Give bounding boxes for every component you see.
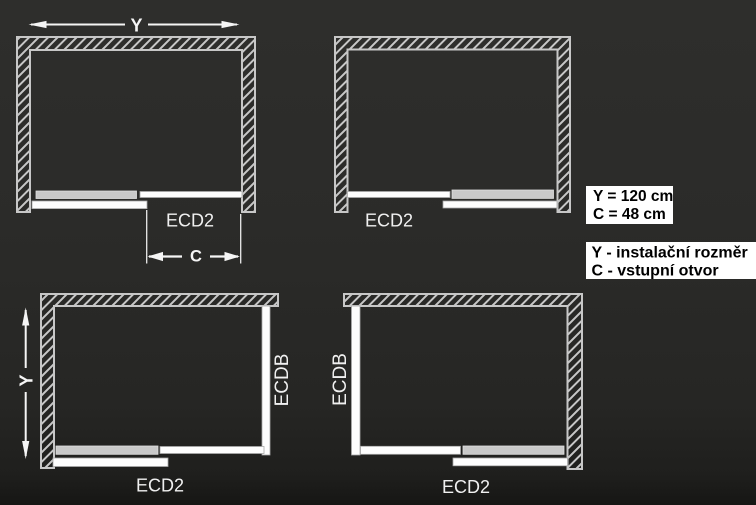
- svg-text:ECD2: ECD2: [166, 210, 214, 230]
- svg-text:Y = 120 cm: Y = 120 cm: [593, 188, 673, 205]
- svg-text:ECD2: ECD2: [136, 476, 184, 496]
- svg-text:Y: Y: [17, 374, 37, 386]
- svg-text:Y - instalační rozměr: Y - instalační rozměr: [592, 245, 748, 262]
- svg-text:ECD2: ECD2: [365, 211, 413, 231]
- svg-text:Y: Y: [130, 16, 142, 36]
- svg-text:ECDB: ECDB: [330, 353, 351, 406]
- svg-text:ECD2: ECD2: [442, 477, 490, 497]
- svg-text:ECDB: ECDB: [272, 354, 293, 407]
- svg-text:C: C: [190, 248, 202, 266]
- svg-text:C - vstupní otvor: C - vstupní otvor: [592, 263, 719, 280]
- svg-text:C = 48 cm: C = 48 cm: [593, 206, 666, 223]
